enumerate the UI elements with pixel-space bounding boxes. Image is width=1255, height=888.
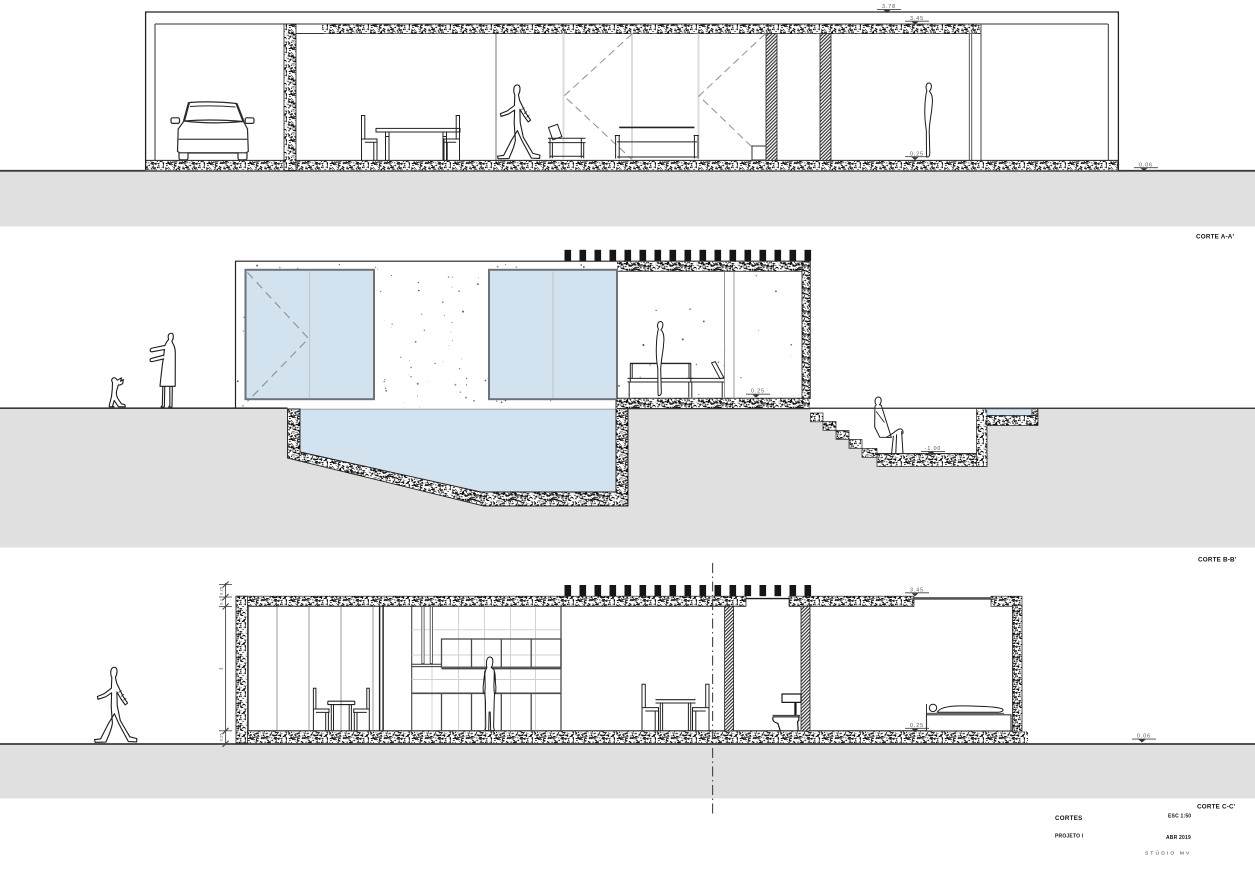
- svg-text:0.25: 0.25: [751, 389, 765, 395]
- svg-text:CORTE B-B': CORTE B-B': [1198, 557, 1237, 564]
- svg-text:PROJETO I: PROJETO I: [1055, 834, 1084, 840]
- svg-text:0.2: 0.2: [220, 599, 224, 605]
- svg-text:CORTE A-A': CORTE A-A': [1196, 234, 1235, 241]
- svg-text:CORTE C-C': CORTE C-C': [1197, 804, 1236, 811]
- svg-text:0.25: 0.25: [220, 733, 224, 741]
- svg-text:ESC 1:50: ESC 1:50: [1168, 813, 1191, 819]
- svg-text:STÚDIO MV: STÚDIO MV: [1145, 850, 1191, 857]
- svg-text:-1.00: -1.00: [925, 446, 942, 452]
- svg-text:CORTES: CORTES: [1055, 815, 1083, 822]
- svg-text:ABR 2019: ABR 2019: [1166, 835, 1191, 841]
- svg-text:0.25: 0.25: [220, 587, 224, 595]
